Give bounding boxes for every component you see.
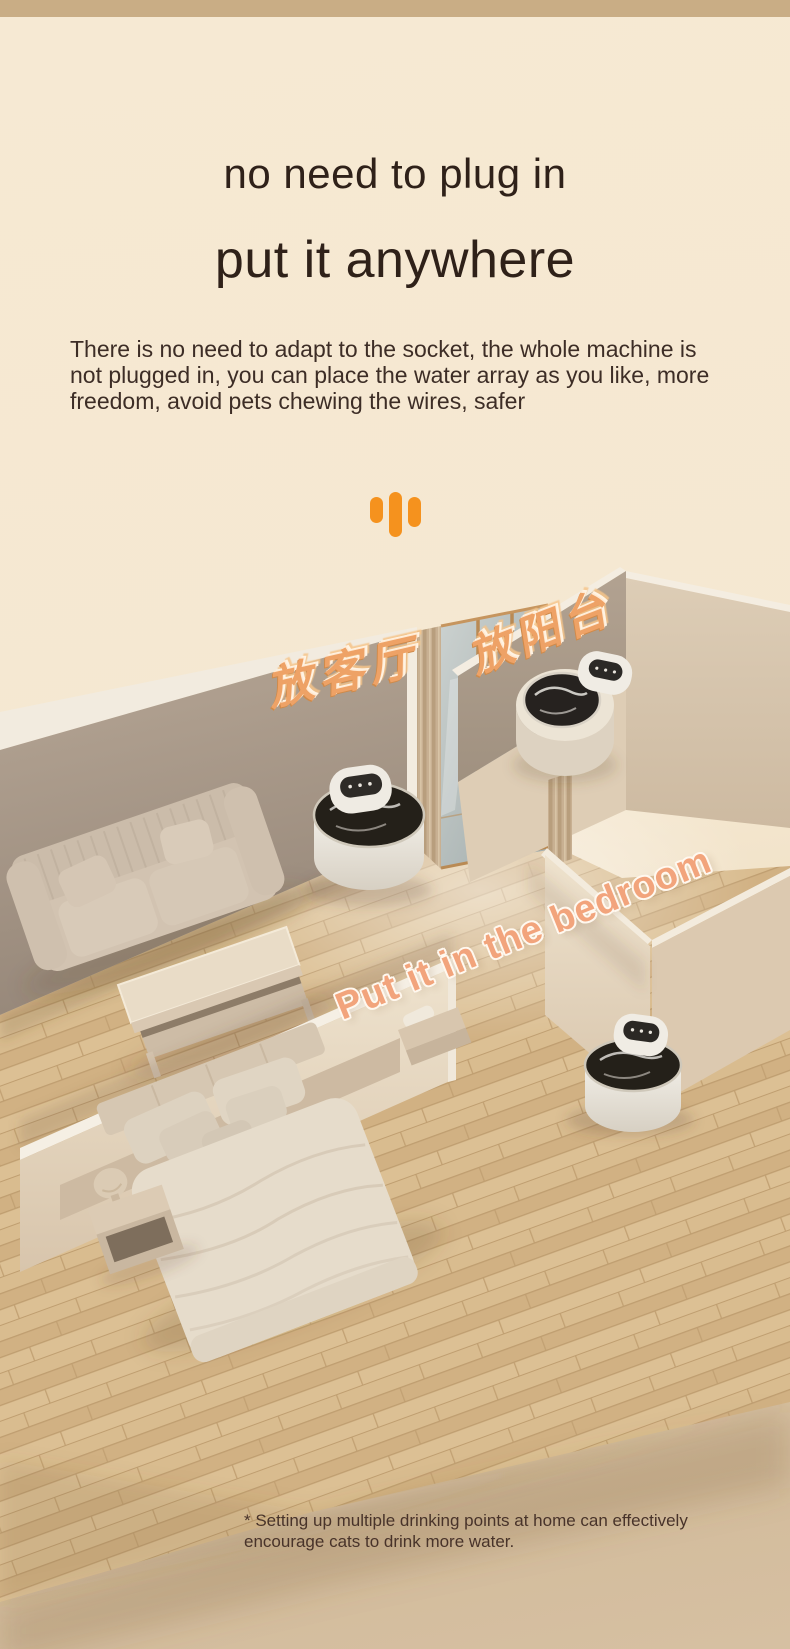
orange-bars-icon: [0, 492, 790, 537]
orange-bar-short: [370, 497, 383, 523]
hero-body-text: There is no need to adapt to the socket,…: [70, 336, 730, 414]
top-edge-strip: [0, 0, 790, 17]
headline-line2: put it anywhere: [0, 230, 790, 290]
headline-line1: no need to plug in: [0, 150, 790, 198]
right-wall-face: [626, 578, 790, 828]
orange-bar-medium: [408, 497, 421, 527]
room-render: [0, 560, 790, 1649]
orange-bar-tall: [389, 492, 402, 537]
footnote-text: * Setting up multiple drinking points at…: [244, 1510, 714, 1552]
room-illustration: 放客厅 放阳台 Put it in the bedroom: [0, 560, 790, 1649]
product-marketing-page: no need to plug in put it anywhere There…: [0, 0, 790, 1649]
